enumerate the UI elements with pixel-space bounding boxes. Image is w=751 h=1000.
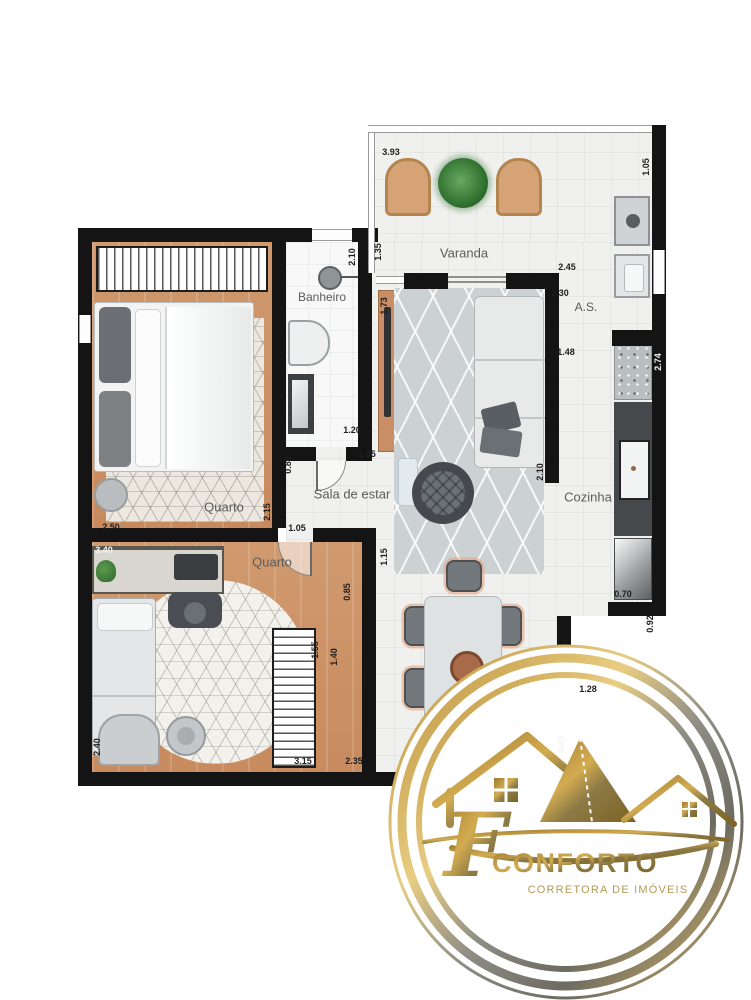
dimension-label: 0.70 xyxy=(614,589,632,599)
wall xyxy=(313,528,376,542)
balcony-window xyxy=(368,125,652,133)
wall xyxy=(545,273,559,483)
dimension-label: 1.35 xyxy=(358,449,376,459)
wall xyxy=(404,273,448,289)
wall xyxy=(78,772,376,786)
pillow xyxy=(99,307,131,383)
tank-basin xyxy=(624,264,644,292)
dimension-label: 0.85 xyxy=(342,583,352,601)
desk-chair xyxy=(168,592,222,628)
dimension-label: 2.74 xyxy=(653,353,663,371)
dimension-label: 2.15 xyxy=(262,503,272,521)
tv xyxy=(384,307,391,417)
screenshot-canvas: Varanda Banheiro Sala de estar A.S. Cozi… xyxy=(0,0,751,1000)
wall xyxy=(612,330,652,346)
sofa xyxy=(474,296,544,468)
room-label-quarto1: Quarto xyxy=(204,500,244,515)
washing-machine xyxy=(614,196,650,246)
balcony-chair xyxy=(385,158,431,216)
round-armchair-seat xyxy=(421,471,465,515)
sofa-pillow xyxy=(479,426,522,457)
dimension-label: 1.05 xyxy=(641,158,651,176)
balcony-chair xyxy=(496,158,542,216)
duvet xyxy=(165,307,251,469)
wall xyxy=(506,273,552,289)
dimension-label: 2.10 xyxy=(347,248,357,266)
dimension-label: 1.73 xyxy=(379,297,389,315)
bathroom-window xyxy=(312,229,352,241)
dimension-label: 1.05 xyxy=(288,523,306,533)
wardrobe xyxy=(96,246,268,292)
dimension-label: 0.80 xyxy=(283,456,293,474)
dimension-label: 1.20 xyxy=(343,425,361,435)
room-label-quarto2: Quarto xyxy=(252,555,292,570)
plant xyxy=(96,560,116,582)
brand-logo-svg: F CONFORTO CORRETORA DE IMÓVEIS xyxy=(386,642,746,1000)
balcony-window xyxy=(376,276,404,284)
brand-logo: F CONFORTO CORRETORA DE IMÓVEIS xyxy=(386,642,746,1000)
kitchen-counter xyxy=(614,402,652,536)
wall xyxy=(362,542,376,786)
dimension-label: 2.50 xyxy=(102,522,120,532)
wall xyxy=(608,602,666,616)
dimension-label: 1.40 xyxy=(329,648,339,666)
side-stool xyxy=(166,716,206,756)
pouf xyxy=(94,478,128,512)
room-label-banheiro: Banheiro xyxy=(298,290,346,304)
pillow xyxy=(135,309,161,467)
logo-brand-text: CONFORTO xyxy=(492,848,658,878)
laundry-tank xyxy=(614,254,650,298)
pillow xyxy=(99,391,131,467)
burner xyxy=(631,466,636,471)
bedroom1-window xyxy=(79,315,91,343)
dining-chair xyxy=(446,560,482,592)
blanket-seam xyxy=(93,695,157,697)
dimension-label: 2.40 xyxy=(92,738,102,756)
shower-tray xyxy=(292,380,308,428)
stool-top xyxy=(177,727,195,745)
room-label-varanda: Varanda xyxy=(440,246,488,261)
bathroom-sink xyxy=(318,266,342,290)
sofa-seam xyxy=(475,359,545,361)
washer-door xyxy=(626,214,640,228)
dimension-label: 2.30 xyxy=(551,288,569,298)
logo-monogram: F xyxy=(441,793,512,897)
room-label-sala: Sala de estar xyxy=(314,487,391,502)
service-window xyxy=(653,250,665,294)
desk-chair-seat xyxy=(184,602,206,624)
room-label-as: A.S. xyxy=(575,300,598,314)
dimension-label: 2.10 xyxy=(535,463,545,481)
dimension-label: 2.35 xyxy=(345,756,363,766)
monitor xyxy=(174,554,218,580)
dimension-label: 0.92 xyxy=(645,615,655,633)
dimension-label: 0.82 xyxy=(556,735,566,753)
logo-tagline: CORRETORA DE IMÓVEIS xyxy=(528,883,689,896)
dimension-label: 3.93 xyxy=(382,147,400,157)
dimension-label: 1.15 xyxy=(379,548,389,566)
dimension-label: 3.40 xyxy=(95,545,113,555)
stove xyxy=(619,440,650,500)
dimension-label: 3.15 xyxy=(294,756,312,766)
dimension-label: 2.45 xyxy=(558,262,576,272)
dimension-label: 1.35 xyxy=(373,243,383,261)
bedroom2-door-leaf xyxy=(310,542,312,576)
balcony-plant xyxy=(438,158,488,208)
armchair xyxy=(98,714,160,766)
dimension-label: 1.48 xyxy=(557,347,575,357)
dimension-label: 1.55 xyxy=(310,641,320,659)
faucet xyxy=(340,276,358,278)
pillow xyxy=(97,603,153,631)
wall xyxy=(78,228,312,242)
room-label-cozinha: Cozinha xyxy=(564,490,612,505)
dimension-label: 1.28 xyxy=(579,684,597,694)
sliding-door xyxy=(448,276,506,284)
toilet xyxy=(288,320,330,366)
shower xyxy=(288,374,314,434)
round-armchair xyxy=(412,462,474,524)
wall xyxy=(272,242,286,528)
double-bed xyxy=(94,302,254,472)
